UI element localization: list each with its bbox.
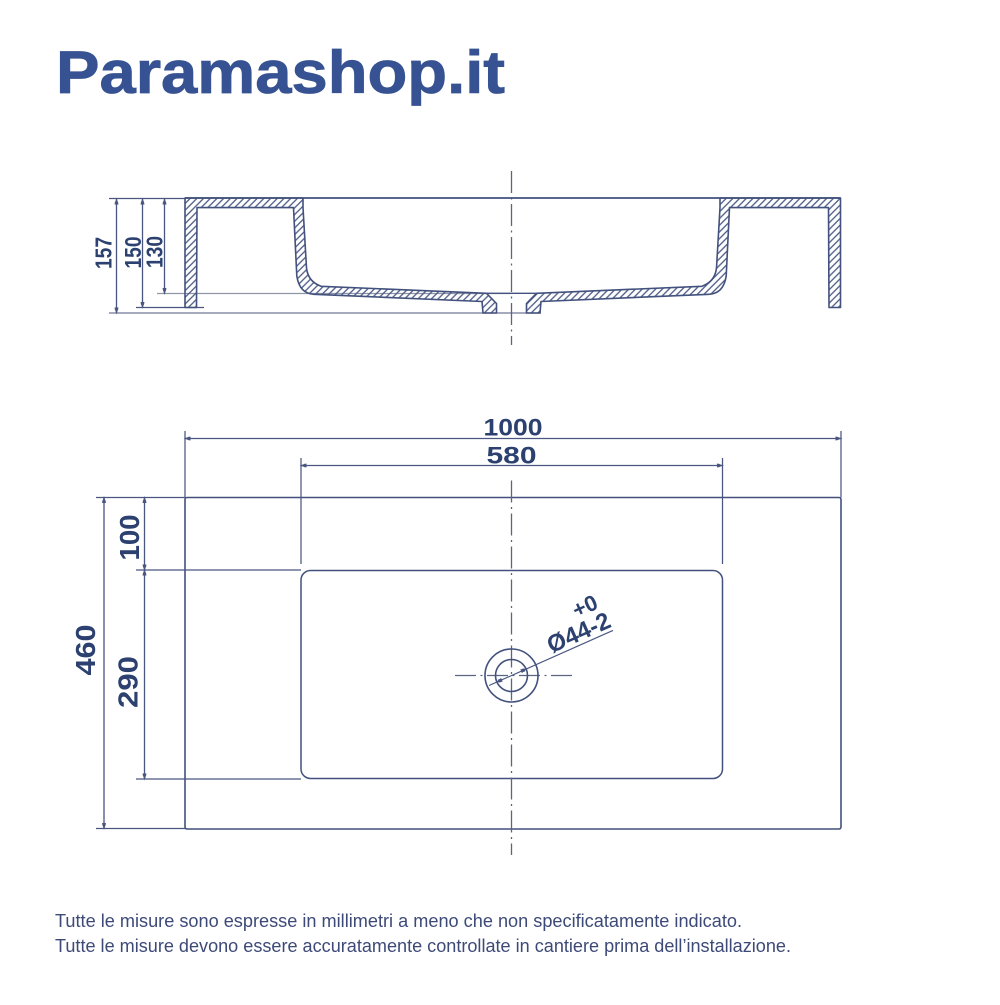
svg-text:100: 100: [114, 515, 145, 561]
svg-text:1000: 1000: [484, 415, 543, 442]
svg-text:Paramashop.it: Paramashop.it: [56, 39, 505, 106]
svg-text:Tutte le misure sono espresse: Tutte le misure sono espresse in millime…: [55, 911, 742, 931]
svg-text:290: 290: [113, 656, 144, 708]
svg-text:Tutte le misure devono essere: Tutte le misure devono essere accuratame…: [55, 936, 791, 956]
svg-text:157: 157: [91, 237, 117, 269]
svg-text:460: 460: [70, 625, 101, 676]
svg-text:130: 130: [142, 236, 168, 268]
svg-text:580: 580: [487, 443, 537, 470]
